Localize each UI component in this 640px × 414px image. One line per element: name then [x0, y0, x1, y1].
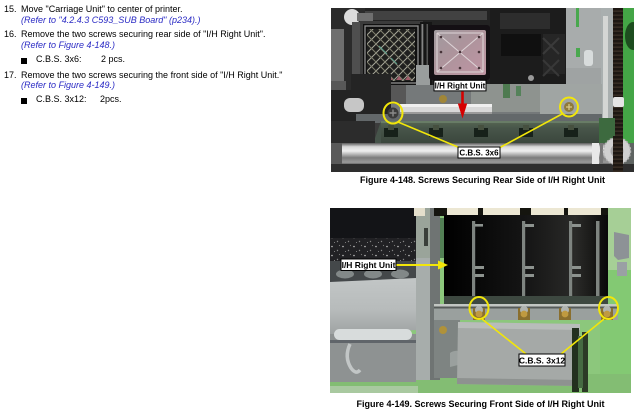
svg-text:I/H Right Unit: I/H Right Unit [342, 260, 396, 270]
svg-text:C.B.S. 3x12: C.B.S. 3x12 [519, 356, 566, 366]
svg-text:I/H Right Unit: I/H Right Unit [435, 82, 486, 91]
svg-text:C.B.S. 3x6: C.B.S. 3x6 [459, 149, 499, 158]
